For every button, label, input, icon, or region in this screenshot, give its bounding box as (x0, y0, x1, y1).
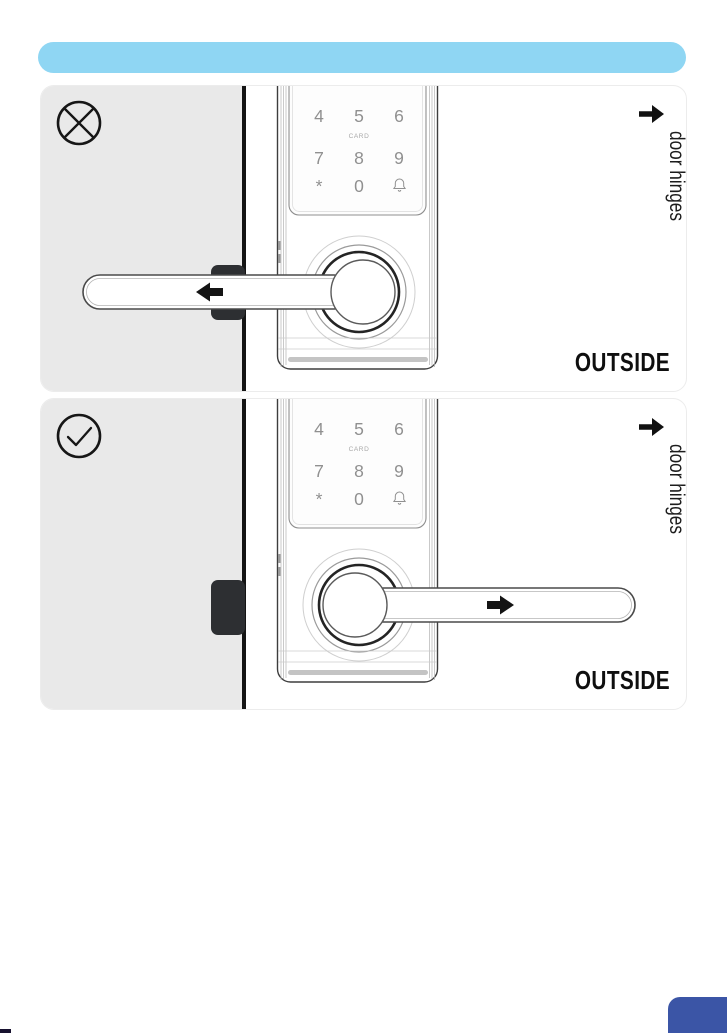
door-hinges-arrow-icon (639, 103, 665, 125)
doorbell-key[interactable] (379, 489, 419, 510)
instruction-page: 4 5 6 CARD 7 8 9 * 0 door hinges OUTSIDE (0, 0, 727, 1033)
keypad-key-5[interactable]: 5 (339, 419, 379, 440)
keypad-key-5[interactable]: 5 (339, 106, 379, 127)
cross-circle-icon (55, 99, 103, 147)
instruction-panel-incorrect: 4 5 6 CARD 7 8 9 * 0 door hinges OUTSIDE (40, 85, 687, 392)
keypad-key-8[interactable]: 8 (339, 461, 379, 482)
outside-label: OUTSIDE (575, 347, 670, 378)
doorbell-icon (392, 177, 407, 192)
keypad-key-7[interactable]: 7 (299, 148, 339, 169)
keypad-key-7[interactable]: 7 (299, 461, 339, 482)
doorbell-icon (392, 490, 407, 505)
header-bar (38, 42, 686, 73)
card-label: CARD (339, 446, 379, 453)
corner-accent (668, 997, 727, 1033)
keypad-key-4[interactable]: 4 (299, 106, 339, 127)
keypad-key-8[interactable]: 8 (339, 148, 379, 169)
door-hinges-label: door hinges (664, 131, 687, 221)
card-label: CARD (339, 133, 379, 140)
doorbell-key[interactable] (379, 176, 419, 197)
keypad-key-9[interactable]: 9 (379, 461, 419, 482)
keypad-key-0[interactable]: 0 (339, 489, 379, 510)
door-hinges-label: door hinges (664, 444, 687, 534)
footer-mark (0, 1029, 11, 1033)
door-hinges-arrow-icon (639, 416, 665, 438)
keypad-key-6[interactable]: 6 (379, 106, 419, 127)
latch-bolt (211, 580, 245, 635)
keypad-key-star[interactable]: * (299, 489, 339, 510)
keypad: 4 5 6 CARD 7 8 9 * 0 (299, 413, 419, 525)
instruction-panel-correct: 4 5 6 CARD 7 8 9 * 0 door hinges OUTSIDE (40, 398, 687, 710)
check-circle-icon (55, 412, 103, 460)
keypad-key-4[interactable]: 4 (299, 419, 339, 440)
outside-label: OUTSIDE (575, 665, 670, 696)
keypad-key-star[interactable]: * (299, 176, 339, 197)
keypad-key-6[interactable]: 6 (379, 419, 419, 440)
keypad: 4 5 6 CARD 7 8 9 * 0 (299, 100, 419, 212)
keypad-key-0[interactable]: 0 (339, 176, 379, 197)
keypad-key-9[interactable]: 9 (379, 148, 419, 169)
